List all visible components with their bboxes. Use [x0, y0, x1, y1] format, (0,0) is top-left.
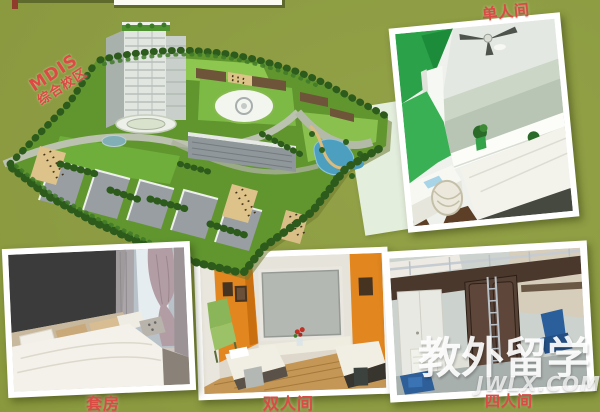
single-room-photo-image [395, 19, 573, 226]
photo-single-room [389, 12, 580, 233]
top-cropped-card [114, 0, 285, 8]
top-red-tab [12, 0, 18, 9]
suite-photo-image [8, 247, 190, 392]
watermark-site: JWLX.COM [476, 372, 600, 396]
poster-page: MDIS 综合校区 [0, 0, 600, 412]
double-room-label: 双人间 [263, 390, 314, 412]
photo-suite [2, 241, 196, 398]
suite-label: 套房 [86, 390, 120, 412]
top-frame-line [16, 0, 116, 3]
